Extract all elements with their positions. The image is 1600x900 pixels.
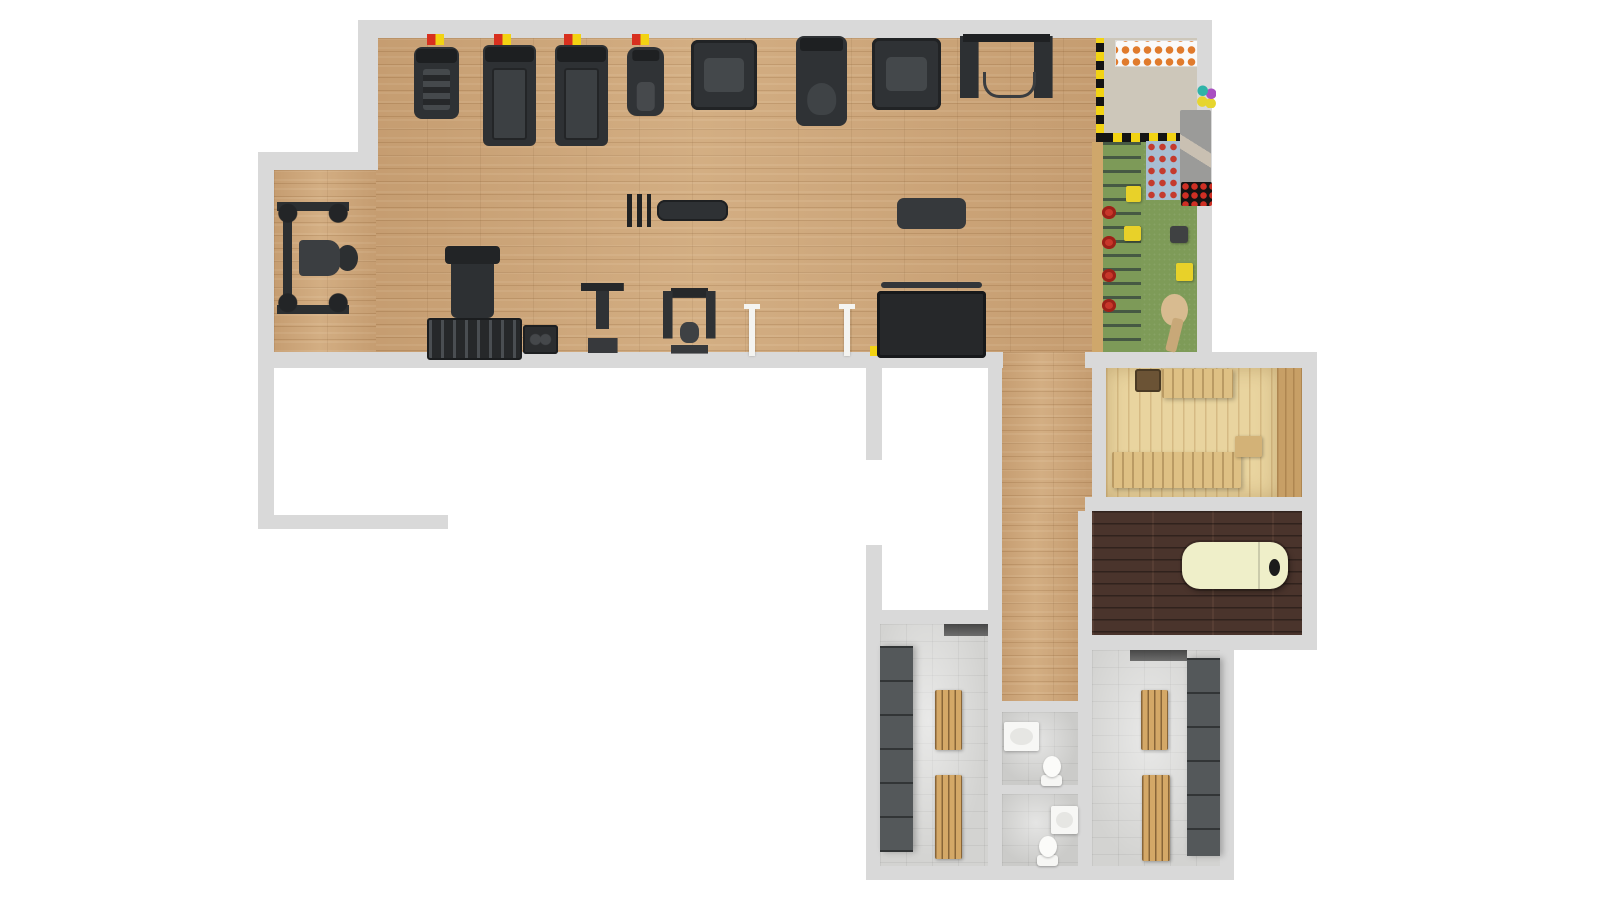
wall-white-room-bottom	[258, 515, 448, 529]
wall-stub-b	[866, 545, 882, 624]
wc2-toilet	[1035, 836, 1060, 866]
wall-locker-right-side	[1220, 650, 1234, 880]
kids-shoe-shelf	[1115, 40, 1198, 67]
leg-press-machine	[691, 40, 757, 110]
sauna-heater	[1135, 369, 1161, 392]
shoulder-press-machine	[872, 38, 941, 110]
kids-frame-beam	[1092, 142, 1103, 352]
locker-right-shelf	[1130, 650, 1187, 661]
plate-rack	[523, 325, 558, 354]
wall-sauna-massage	[1085, 497, 1317, 511]
exercise-mat	[897, 198, 966, 229]
safety-marker-2	[494, 34, 511, 45]
kids-play-tree	[1157, 294, 1192, 352]
partition-pole-1	[749, 306, 755, 356]
kids-yellow-block-1	[1126, 186, 1141, 202]
kids-dark-cube	[1170, 226, 1188, 243]
wall-left	[258, 152, 274, 529]
wc2-sink	[1051, 806, 1078, 834]
cable-crossover	[960, 34, 1053, 110]
locker-left-bench-2	[935, 775, 962, 859]
safety-marker-1	[427, 34, 444, 45]
wall-locker-left-top	[866, 610, 1002, 624]
roman-chair	[663, 288, 716, 354]
dumbbell-rack	[427, 318, 522, 360]
kids-play-balls	[1197, 85, 1216, 108]
wc1-toilet	[1039, 756, 1064, 786]
kids-yellow-block-2	[1124, 226, 1141, 241]
wall-wc-top	[1002, 701, 1078, 712]
wall-sauna-left	[1092, 368, 1106, 511]
flat-bench-with-dumbbells	[627, 191, 728, 230]
gym-floor-plan	[0, 0, 1600, 900]
wall-sauna-top	[1085, 352, 1317, 368]
wall-top	[358, 20, 1212, 38]
wall-locker-wc-divider	[988, 624, 1002, 866]
locker-left-bench-1	[935, 690, 962, 750]
treadmill-1	[483, 45, 536, 146]
corridor-floor-upper	[1000, 352, 1092, 512]
kids-yellow-cube	[1176, 263, 1193, 281]
wall-left-upper	[358, 20, 378, 170]
wc1-sink	[1004, 722, 1039, 751]
dip-station	[577, 283, 628, 353]
wall-massage-bottom	[1078, 635, 1317, 650]
kids-climbing-wall	[1146, 141, 1180, 200]
kids-fence-vertical	[1096, 38, 1104, 142]
wall-wc-divider	[1002, 785, 1078, 794]
massage-table	[1182, 542, 1288, 589]
wall-notch	[258, 152, 378, 170]
treadmill-2	[555, 45, 608, 146]
safety-marker-3	[564, 34, 581, 45]
stair-climber	[414, 47, 459, 119]
elliptical-trainer	[627, 47, 664, 116]
locker-right-bench-2	[1142, 775, 1170, 861]
wall-stub-a	[866, 368, 882, 460]
locker-right-bench-1	[1141, 690, 1168, 750]
partition-pole-2	[844, 306, 850, 356]
sauna-step	[1235, 436, 1262, 457]
sauna-bench-upper	[1162, 369, 1233, 398]
kids-red-wheel-1	[1102, 206, 1116, 219]
kids-red-wheel-4	[1102, 299, 1116, 312]
lockers-left	[880, 646, 913, 852]
lockers-right	[1187, 658, 1220, 856]
kids-ball-pit	[1181, 182, 1212, 206]
sauna-vestibule-floor	[1277, 368, 1302, 497]
exercise-bike	[796, 36, 847, 126]
smith-machine	[277, 202, 349, 314]
wall-corridor-left	[988, 368, 1002, 612]
sauna-bench-lower	[1112, 452, 1241, 488]
adjustable-bench	[451, 249, 494, 318]
corridor-floor-lower	[1000, 512, 1078, 702]
locker-left-shelf	[944, 624, 988, 636]
wall-locker-left-side	[866, 610, 880, 880]
safety-marker-4	[632, 34, 649, 45]
storage-ball-rack	[877, 291, 986, 358]
wall-massage-wc-left	[1078, 511, 1092, 866]
kids-red-wheel-3	[1102, 269, 1116, 282]
kids-red-wheel-2	[1102, 236, 1116, 249]
wall-bottom	[866, 866, 1234, 880]
